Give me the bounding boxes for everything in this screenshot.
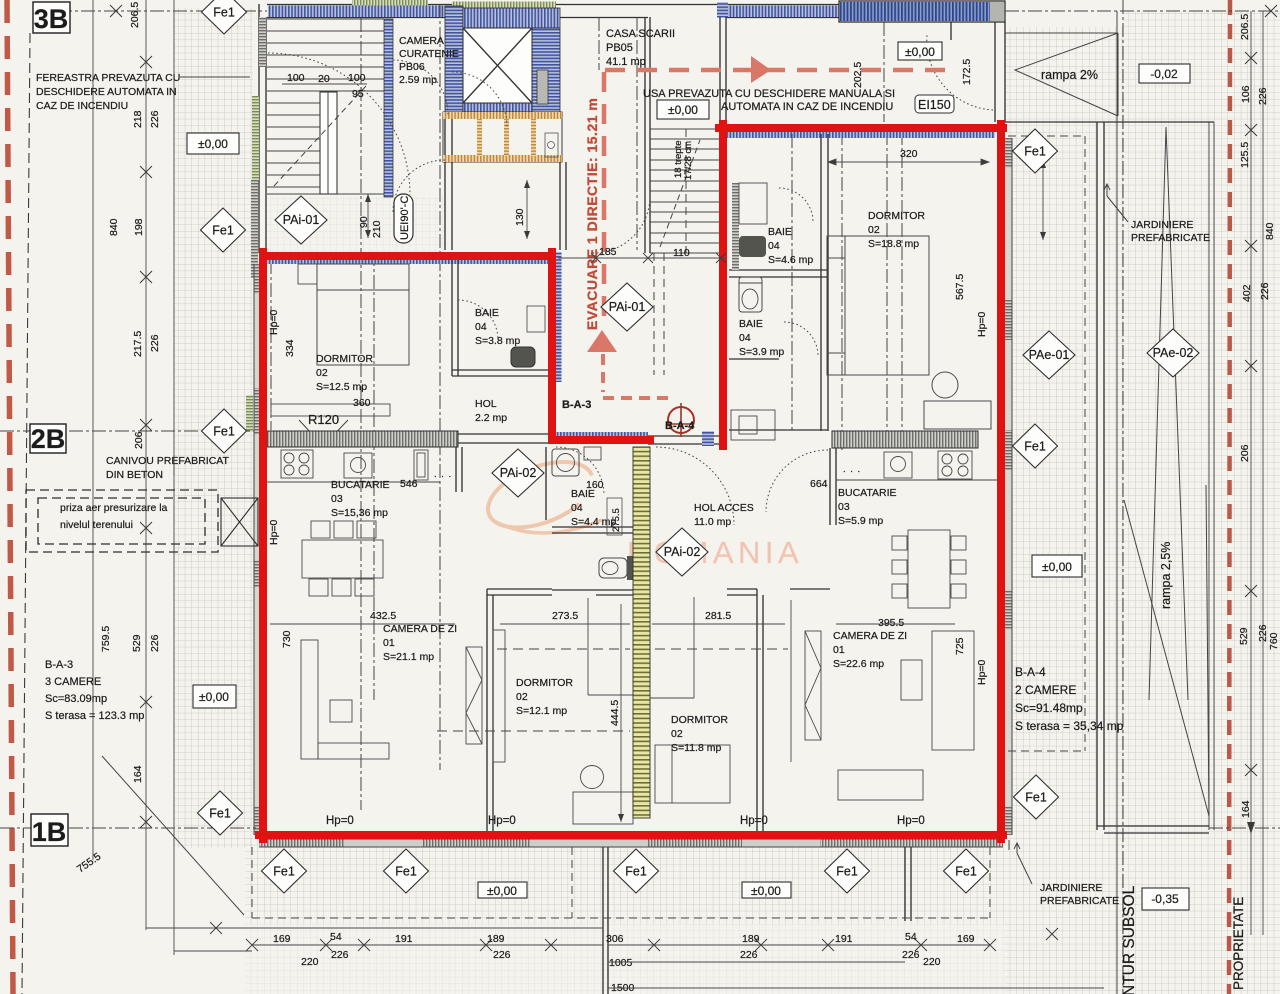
svg-text:-0,35: -0,35 (1151, 892, 1179, 906)
svg-text:S=21.1 mp: S=21.1 mp (383, 651, 434, 663)
svg-text:PREFABRICATE: PREFABRICATE (1131, 232, 1210, 244)
svg-text:±0,00: ±0,00 (1042, 560, 1072, 574)
svg-text:HOL: HOL (475, 398, 497, 410)
svg-text:Hp=0: Hp=0 (976, 311, 988, 337)
svg-text:±0,00: ±0,00 (198, 137, 228, 151)
svg-text:664: 664 (810, 478, 828, 490)
svg-text:rampa 2%: rampa 2% (1041, 68, 1098, 82)
svg-text:DORMITOR: DORMITOR (316, 353, 373, 365)
svg-text:ROMANIA: ROMANIA (627, 535, 803, 570)
svg-text:04: 04 (571, 502, 583, 514)
svg-text:. . .: . . . (843, 464, 861, 475)
svg-text:S=4.4 mp: S=4.4 mp (571, 516, 616, 528)
svg-text:S=3.8 mp: S=3.8 mp (475, 335, 520, 347)
svg-text:226: 226 (149, 334, 161, 352)
svg-text:BAIE: BAIE (768, 226, 792, 238)
svg-text:±0,00: ±0,00 (199, 690, 229, 704)
svg-text:±0,00: ±0,00 (668, 103, 698, 117)
svg-text:11.0 mp: 11.0 mp (694, 516, 731, 528)
svg-text:432.5: 432.5 (370, 610, 396, 622)
svg-text:CAMERA: CAMERA (399, 35, 444, 47)
svg-text:04: 04 (475, 321, 487, 333)
svg-text:PB06: PB06 (399, 61, 425, 73)
svg-text:840: 840 (108, 218, 120, 236)
svg-text:395.5: 395.5 (878, 617, 904, 629)
svg-text:17/28 cm: 17/28 cm (683, 141, 694, 180)
svg-text:EVACUARE 1 DIRECTIE: 15.21 m: EVACUARE 1 DIRECTIE: 15.21 m (584, 98, 600, 330)
svg-text:54: 54 (905, 931, 917, 943)
svg-text:1005: 1005 (609, 957, 633, 969)
svg-text:1B: 1B (32, 817, 67, 847)
svg-text:226: 226 (902, 949, 920, 961)
svg-text:226: 226 (740, 949, 758, 961)
svg-text:334: 334 (284, 339, 296, 357)
svg-text:B-A-4: B-A-4 (665, 420, 695, 432)
svg-text:01: 01 (833, 644, 845, 656)
svg-text:226: 226 (493, 949, 511, 961)
svg-text:priza aer presurizare la: priza aer presurizare la (60, 502, 168, 514)
svg-text:106: 106 (1240, 85, 1252, 103)
svg-text:CAMERA DE ZI: CAMERA DE ZI (383, 623, 457, 635)
svg-text:191: 191 (395, 933, 413, 945)
svg-text:DORMITOR: DORMITOR (671, 714, 728, 726)
svg-text:185: 185 (599, 246, 617, 258)
svg-text:529: 529 (1238, 627, 1250, 645)
svg-text:198: 198 (133, 218, 145, 236)
svg-text:S=5.9 mp: S=5.9 mp (838, 515, 883, 527)
svg-text:169: 169 (957, 933, 975, 945)
svg-text:DORMITOR: DORMITOR (868, 210, 925, 222)
svg-text:95: 95 (352, 88, 364, 100)
svg-text:273.5: 273.5 (552, 610, 578, 622)
svg-text:. . .: . . . (434, 469, 452, 480)
svg-text:Hp=0: Hp=0 (326, 815, 354, 827)
svg-text:±0,00: ±0,00 (751, 884, 781, 898)
svg-text:BAIE: BAIE (739, 318, 763, 330)
svg-text:BAIE: BAIE (475, 307, 499, 319)
svg-text:130: 130 (514, 208, 526, 226)
svg-text:AUTOMATA IN CAZ DE INCENDIU: AUTOMATA IN CAZ DE INCENDIU (721, 101, 893, 113)
svg-text:PAe-01: PAe-01 (1029, 348, 1070, 362)
svg-text:100: 100 (287, 72, 305, 84)
svg-text:R120: R120 (308, 412, 339, 427)
svg-text:206.5: 206.5 (1239, 14, 1251, 40)
svg-text:210: 210 (371, 220, 383, 238)
svg-text:2.2 mp: 2.2 mp (475, 412, 507, 424)
svg-text:03: 03 (838, 501, 850, 513)
svg-text:03: 03 (331, 493, 343, 505)
svg-text:NTUR SUBSOL: NTUR SUBSOL (1121, 885, 1138, 994)
svg-text:S=22.6 mp: S=22.6 mp (833, 658, 884, 670)
svg-text:04: 04 (739, 332, 751, 344)
svg-text:BUCATARIE: BUCATARIE (838, 487, 897, 499)
svg-text:402: 402 (1241, 284, 1253, 302)
svg-text:760: 760 (1268, 632, 1280, 650)
svg-text:Hp=0: Hp=0 (268, 519, 280, 545)
svg-text:226: 226 (1259, 282, 1271, 300)
svg-text:CAMERA DE ZI: CAMERA DE ZI (833, 630, 907, 642)
svg-text:rampa 2,5%: rampa 2,5% (1159, 542, 1173, 609)
svg-text:JARDINIERE: JARDINIERE (1040, 882, 1102, 894)
svg-text:S terasa = 123.3 mp: S terasa = 123.3 mp (45, 710, 144, 722)
svg-text:164: 164 (1240, 800, 1252, 818)
svg-text:529: 529 (131, 634, 143, 652)
svg-text:B-A-3: B-A-3 (562, 399, 591, 411)
svg-text:90: 90 (358, 216, 370, 228)
svg-text:110: 110 (673, 247, 690, 259)
svg-text:S=12.5 mp: S=12.5 mp (316, 381, 367, 393)
svg-text:Hp=0: Hp=0 (268, 309, 280, 335)
svg-text:HOL ACCES: HOL ACCES (694, 502, 754, 514)
svg-text:202.5: 202.5 (852, 62, 864, 88)
svg-text:02: 02 (671, 728, 683, 740)
svg-text:PB05: PB05 (606, 42, 633, 54)
svg-text:PAe-02: PAe-02 (1153, 346, 1194, 360)
svg-text:EI150: EI150 (918, 98, 951, 112)
svg-text:DIN BETON: DIN BETON (106, 469, 163, 481)
svg-text:725: 725 (954, 637, 966, 655)
svg-text:759.5: 759.5 (100, 626, 112, 652)
svg-text:191: 191 (835, 933, 853, 945)
svg-text:02: 02 (516, 691, 528, 703)
svg-text:169: 169 (273, 933, 291, 945)
svg-text:PREFABRICATE: PREFABRICATE (1040, 895, 1119, 907)
svg-text:CURATENIE: CURATENIE (399, 48, 459, 60)
svg-text:546: 546 (400, 478, 418, 490)
svg-text:306: 306 (606, 933, 624, 945)
svg-text:FEREASTRA PREVAZUTA CU: FEREASTRA PREVAZUTA CU (36, 72, 180, 84)
svg-text:JARDINIERE: JARDINIERE (1131, 219, 1193, 231)
svg-text:189: 189 (487, 933, 505, 945)
svg-text:275.5: 275.5 (611, 508, 622, 532)
svg-text:DORMITOR: DORMITOR (516, 677, 573, 689)
svg-text:±0,00: ±0,00 (487, 884, 517, 898)
svg-text:USA PREVAZUTA CU DESCHIDERE MA: USA PREVAZUTA CU DESCHIDERE MANUALA SI (643, 88, 895, 100)
svg-text:2 CAMERE: 2 CAMERE (1015, 683, 1076, 697)
svg-text:S=18.8 mp: S=18.8 mp (868, 238, 919, 250)
svg-text:BUCATARIE: BUCATARIE (331, 479, 390, 491)
svg-text:Hp=0: Hp=0 (976, 659, 988, 685)
svg-text:02: 02 (316, 367, 328, 379)
svg-text:218: 218 (132, 110, 144, 128)
svg-text:04: 04 (768, 240, 780, 252)
svg-text:PAi-02: PAi-02 (500, 466, 537, 480)
svg-text:206.5: 206.5 (129, 2, 141, 28)
svg-text:160: 160 (586, 479, 604, 491)
svg-text:567.5: 567.5 (954, 274, 966, 300)
svg-text:PAi-01: PAi-01 (283, 213, 320, 227)
svg-text:320: 320 (900, 148, 918, 160)
svg-text:226: 226 (331, 949, 349, 961)
svg-text:Hp=0: Hp=0 (897, 815, 925, 827)
svg-text:PROPRIETATE: PROPRIETATE (1231, 897, 1246, 990)
svg-text:±0,00: ±0,00 (905, 45, 935, 59)
svg-text:164: 164 (132, 765, 144, 783)
svg-text:S=3.9 mp: S=3.9 mp (739, 346, 784, 358)
svg-text:Sc=83.09mp: Sc=83.09mp (45, 693, 107, 705)
svg-text:S=12.1 mp: S=12.1 mp (516, 705, 567, 717)
svg-text:840: 840 (1264, 222, 1276, 240)
svg-text:444.5: 444.5 (609, 700, 621, 726)
svg-text:54: 54 (330, 931, 342, 943)
svg-text:226: 226 (149, 634, 161, 652)
svg-text:01: 01 (383, 637, 395, 649)
svg-text:730: 730 (281, 630, 293, 648)
svg-text:100: 100 (348, 72, 366, 84)
svg-text:S=4.6 mp: S=4.6 mp (768, 254, 813, 266)
svg-text:3B: 3B (34, 4, 69, 34)
svg-text:189: 189 (742, 933, 760, 945)
svg-text:206: 206 (133, 431, 145, 449)
svg-text:3 CAMERE: 3 CAMERE (45, 676, 101, 688)
svg-text:220: 220 (923, 956, 941, 968)
svg-text:226: 226 (1257, 87, 1269, 105)
svg-text:CAZ DE INCENDIU: CAZ DE INCENDIU (36, 100, 128, 112)
svg-text:PAi-02: PAi-02 (664, 545, 701, 559)
svg-text:02: 02 (868, 224, 880, 236)
svg-text:S terasa = 35,34 mp: S terasa = 35,34 mp (1015, 719, 1124, 733)
svg-text:360: 360 (353, 397, 371, 409)
svg-text:125.5: 125.5 (1239, 142, 1251, 168)
svg-text:UEI90'-C: UEI90'-C (399, 196, 411, 240)
svg-text:206: 206 (1239, 444, 1251, 462)
svg-text:220: 220 (301, 956, 319, 968)
svg-text:2.59 mp: 2.59 mp (399, 74, 437, 86)
svg-text:DESCHIDERE AUTOMATA IN: DESCHIDERE AUTOMATA IN (36, 86, 177, 98)
svg-text:-0,02: -0,02 (1150, 67, 1178, 81)
svg-text:217.5: 217.5 (132, 331, 144, 357)
svg-text:S=15,36 mp: S=15,36 mp (331, 507, 388, 519)
svg-text:Hp=0: Hp=0 (740, 815, 768, 827)
svg-text:S=11.8 mp: S=11.8 mp (671, 742, 721, 754)
svg-text:Sc=91.48mp: Sc=91.48mp (1015, 701, 1083, 715)
svg-text:20: 20 (318, 73, 330, 85)
svg-text:B-A-4: B-A-4 (1015, 665, 1046, 679)
svg-text:2B: 2B (31, 424, 66, 454)
svg-text:Hp=0: Hp=0 (488, 815, 516, 827)
svg-text:41.1 mp: 41.1 mp (606, 56, 646, 68)
svg-text:PAi-01: PAi-01 (609, 300, 646, 314)
svg-text:281.5: 281.5 (705, 610, 731, 622)
svg-text:B-A-3: B-A-3 (45, 659, 73, 671)
svg-text:CANIVOU PREFABRICAT: CANIVOU PREFABRICAT (106, 455, 229, 467)
svg-text:nivelul terenului: nivelul terenului (60, 519, 133, 531)
svg-text:226: 226 (149, 110, 161, 128)
svg-text:172.5: 172.5 (961, 59, 973, 85)
svg-text:CASA SCARII: CASA SCARII (606, 28, 675, 40)
